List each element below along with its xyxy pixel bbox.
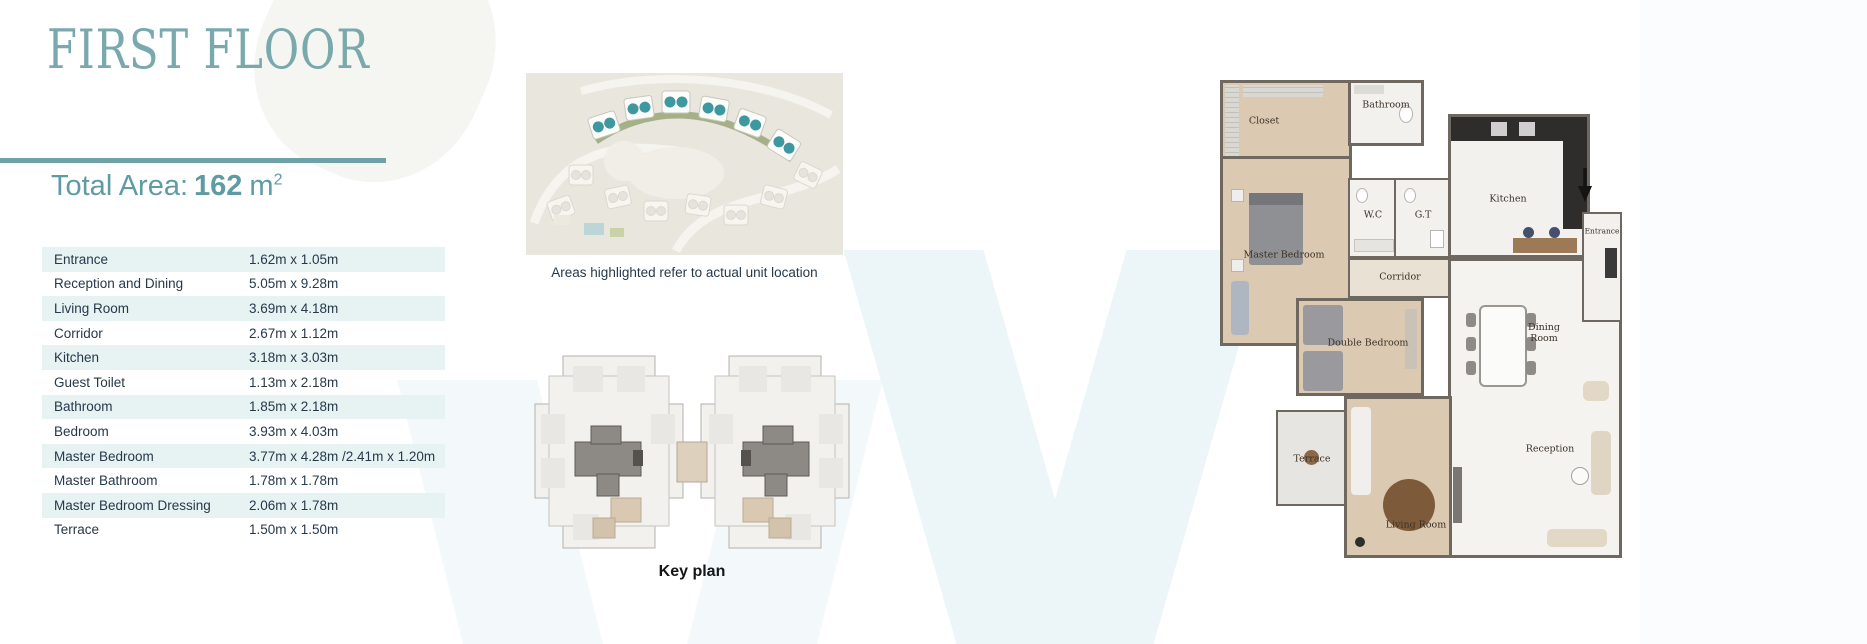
room-size: 2.06m x 1.78m	[249, 498, 445, 513]
key-plan-image	[527, 346, 857, 561]
total-area: Total Area:162m2	[51, 170, 283, 203]
stove	[1491, 122, 1507, 136]
room-name: Master Bedroom	[42, 449, 249, 464]
site-plan-caption: Areas highlighted refer to actual unit l…	[526, 265, 843, 280]
armchair	[1583, 381, 1609, 401]
table-row: Bathroom1.85m x 2.18m	[42, 395, 445, 420]
nightstand	[1231, 189, 1244, 202]
dining-table	[1479, 305, 1527, 387]
room-label: Kitchen	[1489, 195, 1526, 206]
room-label: Entrance	[1585, 228, 1620, 237]
room-name: Living Room	[42, 301, 249, 316]
tv-unit	[1453, 467, 1462, 523]
room-size: 1.62m x 1.05m	[249, 252, 445, 267]
table-row: Master Bedroom3.77m x 4.28m /2.41m x 1.2…	[42, 444, 445, 469]
key-plan-caption: Key plan	[527, 563, 857, 581]
dining-chair	[1526, 361, 1536, 375]
room-label: Double Bedroom	[1328, 339, 1409, 350]
total-area-label: Total Area:	[51, 170, 188, 202]
site-plan-image	[526, 73, 843, 255]
page-title: FIRST FLOOR	[47, 18, 370, 81]
shoe-cabinet	[1605, 248, 1617, 278]
room-kitchen	[1448, 114, 1590, 258]
room-label: Dining Room	[1521, 323, 1567, 345]
room-name: Master Bedroom Dressing	[42, 498, 249, 513]
stool	[1523, 227, 1534, 238]
breakfast-counter	[1513, 238, 1577, 253]
wardrobe	[1243, 85, 1323, 97]
toilet	[1404, 188, 1416, 203]
sofa	[1591, 431, 1611, 495]
room-name: Corridor	[42, 326, 249, 341]
coffee-table	[1571, 467, 1589, 485]
room-size: 3.18m x 3.03m	[249, 350, 445, 365]
room-size: 3.93m x 4.03m	[249, 424, 445, 439]
room-size: 3.69m x 4.18m	[249, 301, 445, 316]
dining-chair	[1466, 313, 1476, 327]
table-row: Corridor2.67m x 1.12m	[42, 321, 445, 346]
dining-chair	[1466, 361, 1476, 375]
room-size: 5.05m x 9.28m	[249, 276, 445, 291]
dining-chair	[1466, 337, 1476, 351]
room-bathroom	[1348, 80, 1424, 146]
sofa	[1351, 407, 1371, 495]
room-label: Terrace	[1294, 455, 1331, 466]
wardrobe	[1225, 85, 1239, 157]
entrance-arrow-icon	[1576, 168, 1594, 204]
room-size: 1.78m x 1.78m	[249, 473, 445, 488]
table-row: Kitchen3.18m x 3.03m	[42, 345, 445, 370]
table-row: Guest Toilet1.13m x 2.18m	[42, 370, 445, 395]
sofa	[1547, 529, 1607, 547]
room-size: 1.13m x 2.18m	[249, 375, 445, 390]
total-area-value: 162	[194, 170, 242, 202]
room-name: Guest Toilet	[42, 375, 249, 390]
room-name: Terrace	[42, 522, 249, 537]
room-label: Reception	[1526, 445, 1575, 456]
table-row: Entrance1.62m x 1.05m	[42, 247, 445, 272]
room-name: Entrance	[42, 252, 249, 267]
accent-divider	[0, 158, 386, 163]
room-label: G.T	[1415, 211, 1432, 222]
brochure-page: FIRST FLOOR Total Area:162m2 Entrance1.6…	[0, 0, 1867, 644]
room-label: Corridor	[1379, 273, 1420, 284]
room-label: Closet	[1249, 117, 1279, 128]
table-row: Reception and Dining5.05m x 9.28m	[42, 272, 445, 297]
room-size: 3.77m x 4.28m /2.41m x 1.20m	[249, 449, 445, 464]
vanity	[1354, 85, 1384, 94]
toilet	[1356, 188, 1368, 203]
room-size: 2.67m x 1.12m	[249, 326, 445, 341]
room-name: Bedroom	[42, 424, 249, 439]
room-name: Reception and Dining	[42, 276, 249, 291]
sink	[1519, 122, 1535, 136]
room-label: Master Bedroom	[1244, 251, 1325, 262]
sofa	[1231, 281, 1249, 335]
dimensions-table: Entrance1.62m x 1.05mReception and Dinin…	[42, 247, 445, 541]
room-size: 1.50m x 1.50m	[249, 522, 445, 537]
room-label: Bathroom	[1362, 101, 1410, 112]
table-row: Master Bathroom1.78m x 1.78m	[42, 468, 445, 493]
room-closet	[1220, 80, 1352, 160]
total-area-unit: m	[249, 170, 273, 202]
table-row: Master Bedroom Dressing2.06m x 1.78m	[42, 493, 445, 518]
nightstand	[1231, 259, 1244, 272]
plant	[1355, 537, 1365, 547]
room-living-room	[1344, 396, 1452, 558]
bed-pillows	[1249, 193, 1303, 205]
table-row: Terrace1.50m x 1.50m	[42, 518, 445, 541]
table-row: Bedroom3.93m x 4.03m	[42, 419, 445, 444]
room-name: Bathroom	[42, 399, 249, 414]
total-area-exponent: 2	[274, 171, 283, 188]
shower	[1354, 239, 1394, 252]
floor-plan: Closet Bathroom Master Bedroom W.C G.T K…	[1218, 70, 1624, 570]
table-row: Living Room3.69m x 4.18m	[42, 296, 445, 321]
stool	[1549, 227, 1560, 238]
room-name: Kitchen	[42, 350, 249, 365]
room-name: Master Bathroom	[42, 473, 249, 488]
room-label: W.C	[1364, 211, 1382, 222]
bed	[1303, 351, 1343, 391]
room-label: Living Room	[1386, 521, 1447, 532]
room-size: 1.85m x 2.18m	[249, 399, 445, 414]
basin	[1430, 230, 1444, 248]
watermark-shape	[1640, 0, 1867, 644]
